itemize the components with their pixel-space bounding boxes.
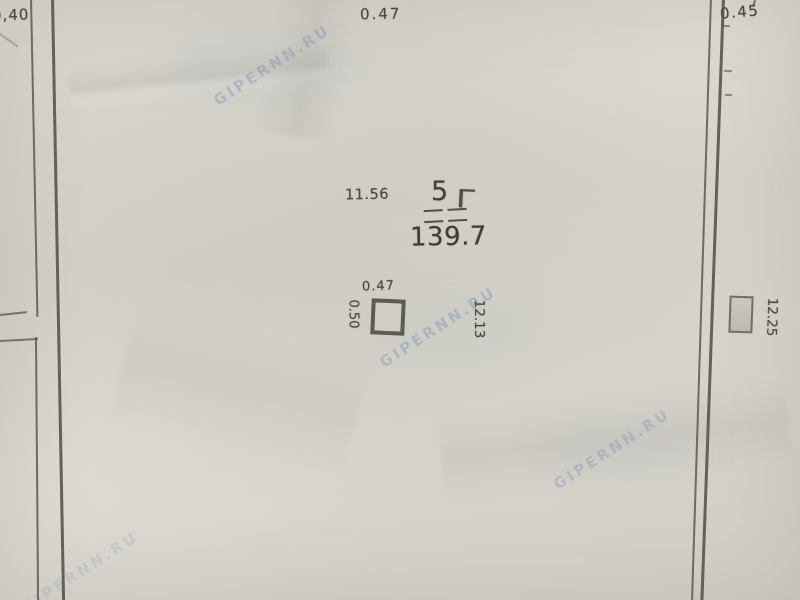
floor-plan-photo: GIPERNN.RU GIPERNN.RU GIPERNN.RU GIPERNN… bbox=[0, 0, 800, 600]
underline-segment bbox=[448, 208, 468, 222]
left-partition-line-upper bbox=[0, 311, 27, 316]
dim-label-room-side: 11.56 bbox=[345, 188, 389, 203]
wall-hatch-tick bbox=[724, 70, 732, 72]
dim-label-column-width: 0.47 bbox=[362, 279, 395, 293]
dim-label-exterior-width: 12.25 bbox=[764, 297, 779, 336]
dim-label-interior-width: 12.13 bbox=[471, 300, 485, 339]
left-wall-inner-line-lower bbox=[35, 337, 39, 600]
room-area: 139.7 bbox=[410, 223, 487, 250]
dim-label-top-center: 0.47 bbox=[360, 7, 402, 23]
crease-mark bbox=[0, 33, 18, 47]
right-wall-outer-line bbox=[700, 0, 724, 600]
dim-label-column-depth: 0.50 bbox=[347, 300, 360, 329]
room-number: 5 bbox=[431, 178, 448, 205]
wall-hatch-tick bbox=[725, 94, 732, 96]
left-wall-inner-line-upper bbox=[30, 0, 39, 317]
left-wall-outer-line bbox=[51, 0, 65, 600]
dim-label-top-left: 0,40 bbox=[0, 7, 30, 23]
wall-hatch-tick bbox=[722, 25, 730, 27]
right-wall-inner-line bbox=[691, 0, 712, 600]
wall-pilaster bbox=[728, 296, 753, 334]
left-partition-line-lower bbox=[0, 338, 38, 342]
column-symbol bbox=[370, 298, 406, 335]
underline-segment bbox=[424, 209, 444, 223]
paper-crease bbox=[109, 303, 371, 477]
